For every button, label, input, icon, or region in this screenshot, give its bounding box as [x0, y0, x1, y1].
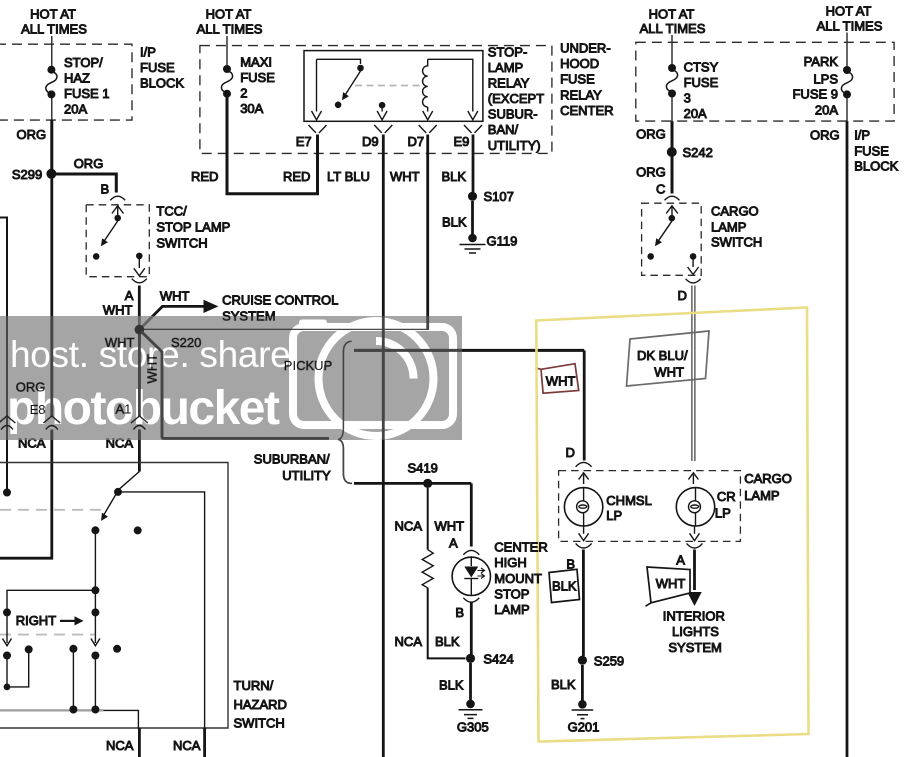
- svg-text:BLK: BLK: [442, 215, 467, 230]
- svg-text:I/P: I/P: [854, 128, 870, 143]
- svg-text:3: 3: [684, 91, 691, 106]
- svg-text:G119: G119: [487, 234, 518, 249]
- svg-text:HAZARD: HAZARD: [234, 697, 287, 712]
- svg-text:BLK: BLK: [439, 678, 464, 693]
- svg-text:ORG: ORG: [74, 156, 104, 171]
- svg-text:SYSTEM: SYSTEM: [222, 309, 275, 324]
- svg-text:LAMP: LAMP: [711, 220, 746, 235]
- svg-text:20A: 20A: [64, 102, 87, 117]
- svg-text:HOOD: HOOD: [560, 56, 599, 71]
- svg-text:BLOCK: BLOCK: [854, 159, 898, 174]
- svg-text:BLK: BLK: [435, 634, 460, 649]
- svg-text:FUSE: FUSE: [560, 72, 595, 87]
- svg-text:ALL TIMES: ALL TIMES: [640, 21, 706, 36]
- svg-text:NCA: NCA: [173, 738, 201, 753]
- svg-text:RELAY: RELAY: [488, 76, 530, 91]
- svg-text:A1: A1: [116, 402, 132, 417]
- svg-text:LP: LP: [606, 508, 622, 523]
- svg-text:CARGO: CARGO: [744, 471, 792, 486]
- svg-text:D: D: [566, 445, 575, 460]
- svg-text:DK BLU/: DK BLU/: [637, 348, 688, 363]
- svg-text:WHT: WHT: [435, 519, 465, 534]
- svg-text:ALL TIMES: ALL TIMES: [21, 22, 87, 37]
- svg-text:UTILITY): UTILITY): [488, 138, 541, 153]
- svg-text:S424: S424: [483, 652, 513, 667]
- svg-text:FUSE: FUSE: [240, 70, 275, 85]
- svg-text:MAXI: MAXI: [240, 55, 272, 70]
- svg-text:B: B: [101, 181, 110, 196]
- svg-text:SWITCH: SWITCH: [234, 716, 285, 731]
- svg-text:PARK: PARK: [804, 54, 839, 69]
- svg-text:A: A: [125, 288, 134, 303]
- svg-text:HIGH: HIGH: [494, 555, 527, 570]
- svg-text:LAMP: LAMP: [488, 60, 523, 75]
- svg-text:LAMP: LAMP: [744, 488, 779, 503]
- svg-text:FUSE: FUSE: [684, 75, 719, 90]
- svg-text:TURN/: TURN/: [234, 678, 274, 693]
- svg-text:ALL TIMES: ALL TIMES: [197, 22, 263, 37]
- svg-text:LP: LP: [715, 506, 731, 521]
- svg-text:E9: E9: [454, 134, 470, 149]
- svg-text:WHT: WHT: [105, 335, 135, 350]
- svg-text:(EXCEPT: (EXCEPT: [488, 91, 544, 106]
- svg-text:CENTER: CENTER: [494, 540, 547, 555]
- svg-text:D7: D7: [408, 134, 425, 149]
- svg-text:D9: D9: [362, 134, 379, 149]
- svg-text:RED: RED: [283, 169, 310, 184]
- svg-text:RELAY: RELAY: [560, 87, 602, 102]
- svg-text:ORG: ORG: [636, 165, 666, 180]
- svg-text:BLK: BLK: [552, 579, 577, 594]
- svg-text:BLK: BLK: [551, 677, 576, 692]
- svg-text:ORG: ORG: [16, 380, 46, 395]
- svg-text:BLK: BLK: [442, 169, 467, 184]
- svg-text:SUBURBAN/: SUBURBAN/: [254, 452, 330, 467]
- svg-text:HOT AT: HOT AT: [30, 7, 76, 22]
- svg-text:CENTER: CENTER: [560, 103, 613, 118]
- svg-text:WHT: WHT: [145, 354, 160, 384]
- svg-text:ALL TIMES: ALL TIMES: [817, 19, 883, 34]
- svg-text:D: D: [678, 288, 687, 303]
- svg-text:LIGHTS: LIGHTS: [672, 624, 719, 639]
- svg-text:A: A: [676, 553, 685, 568]
- svg-text:BAN/: BAN/: [488, 122, 519, 137]
- svg-text:SUBUR-: SUBUR-: [488, 107, 538, 122]
- svg-text:CHMSL: CHMSL: [606, 493, 652, 508]
- svg-text:ORG: ORG: [636, 127, 666, 142]
- svg-text:STOP/: STOP/: [64, 55, 103, 70]
- svg-text:WHT: WHT: [654, 365, 684, 380]
- svg-text:WHT: WHT: [656, 576, 686, 591]
- svg-text:WHT: WHT: [160, 289, 190, 304]
- svg-text:UTILITY: UTILITY: [282, 468, 331, 483]
- svg-text:A: A: [449, 536, 458, 551]
- svg-text:NCA: NCA: [106, 738, 134, 753]
- svg-text:STOP-: STOP-: [488, 45, 528, 60]
- svg-text:HOT AT: HOT AT: [206, 7, 252, 22]
- svg-text:S299: S299: [12, 167, 42, 182]
- svg-text:LAMP: LAMP: [494, 602, 529, 617]
- svg-text:UNDER-: UNDER-: [560, 40, 611, 55]
- svg-text:RIGHT: RIGHT: [16, 613, 57, 628]
- svg-text:B: B: [455, 605, 464, 620]
- svg-text:FUSE 9: FUSE 9: [792, 87, 838, 102]
- svg-text:RED: RED: [191, 169, 218, 184]
- svg-text:HAZ: HAZ: [64, 71, 90, 86]
- svg-text:E7: E7: [296, 134, 312, 149]
- svg-text:NCA: NCA: [395, 634, 423, 649]
- svg-text:30A: 30A: [240, 101, 263, 116]
- svg-text:ORG: ORG: [17, 127, 47, 142]
- svg-text:LPS: LPS: [813, 72, 838, 87]
- svg-text:FUSE: FUSE: [854, 144, 889, 159]
- svg-text:NCA: NCA: [395, 519, 423, 534]
- svg-text:CR: CR: [717, 489, 736, 504]
- svg-text:HOT AT: HOT AT: [826, 4, 872, 19]
- svg-text:S419: S419: [408, 461, 438, 476]
- svg-text:C: C: [656, 182, 665, 197]
- svg-text:E8: E8: [30, 402, 46, 417]
- svg-text:TCC/: TCC/: [156, 204, 187, 219]
- svg-text:S242: S242: [683, 145, 713, 160]
- svg-text:FUSE 1: FUSE 1: [64, 86, 110, 101]
- svg-text:SYSTEM: SYSTEM: [668, 640, 721, 655]
- svg-text:SWITCH: SWITCH: [711, 235, 762, 250]
- svg-text:S107: S107: [484, 189, 514, 204]
- svg-text:WHT: WHT: [103, 303, 133, 318]
- svg-text:BLOCK: BLOCK: [140, 76, 184, 91]
- svg-text:ORG: ORG: [810, 128, 840, 143]
- svg-text:G201: G201: [568, 720, 600, 735]
- svg-text:MOUNT: MOUNT: [494, 571, 542, 586]
- svg-text:I/P: I/P: [140, 45, 156, 60]
- svg-text:CRUISE CONTROL: CRUISE CONTROL: [222, 293, 338, 308]
- svg-text:WHT: WHT: [546, 374, 576, 389]
- svg-text:SWITCH: SWITCH: [156, 236, 207, 251]
- svg-text:CARGO: CARGO: [711, 204, 759, 219]
- svg-text:G305: G305: [457, 720, 489, 735]
- svg-text:2: 2: [240, 86, 247, 101]
- svg-text:STOP LAMP: STOP LAMP: [156, 220, 230, 235]
- svg-text:WHT: WHT: [390, 169, 420, 184]
- svg-text:STOP: STOP: [494, 587, 529, 602]
- svg-text:PICKUP: PICKUP: [284, 358, 332, 373]
- svg-text:20A: 20A: [815, 103, 838, 118]
- svg-text:CTSY: CTSY: [684, 60, 719, 75]
- svg-text:LT BLU: LT BLU: [327, 169, 370, 184]
- svg-text:S220: S220: [171, 335, 201, 350]
- svg-text:HOT AT: HOT AT: [649, 7, 695, 22]
- svg-text:FUSE: FUSE: [140, 60, 175, 75]
- svg-text:INTERIOR: INTERIOR: [663, 609, 725, 624]
- svg-text:20A: 20A: [684, 106, 707, 121]
- svg-text:S259: S259: [594, 654, 624, 669]
